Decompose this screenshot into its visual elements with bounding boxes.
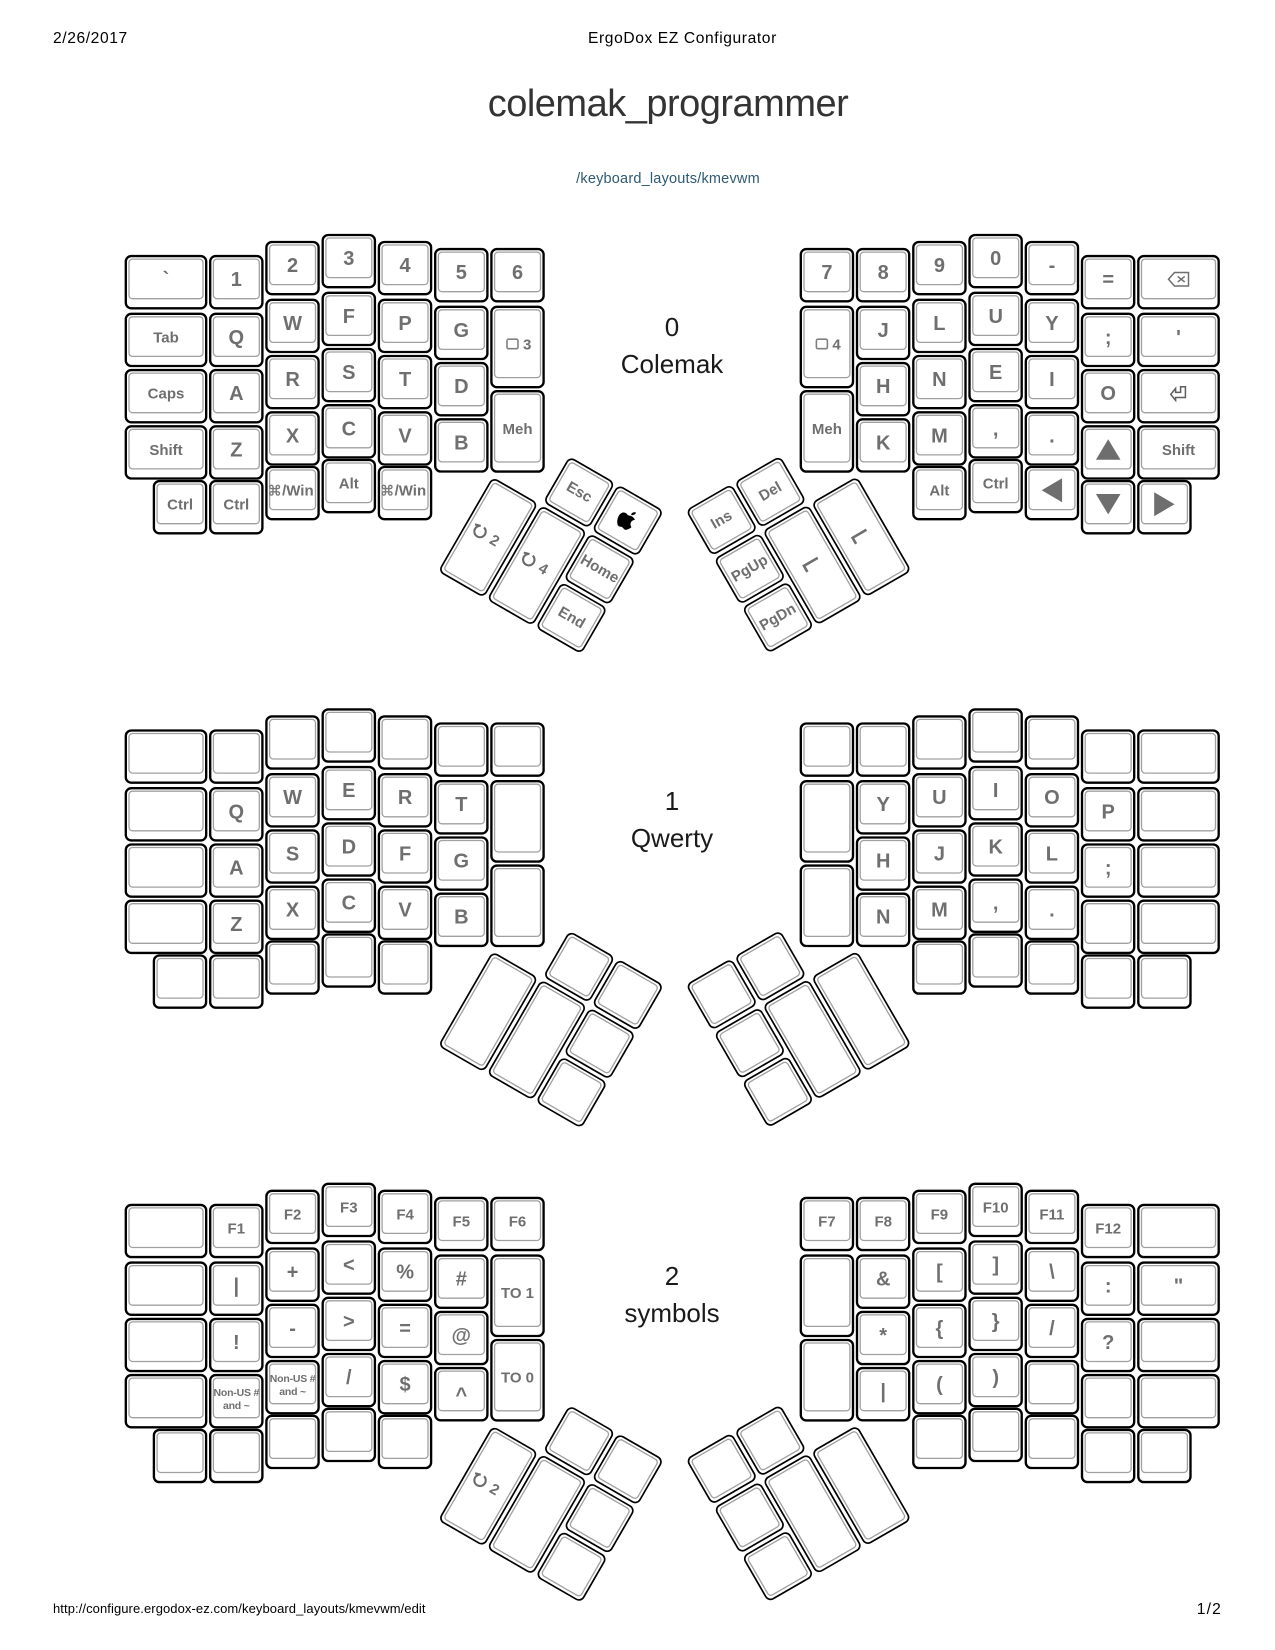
svg-text:C: C	[342, 418, 356, 440]
svg-text:@: @	[452, 1325, 472, 1347]
svg-text:A: A	[229, 383, 243, 405]
svg-text:V: V	[398, 900, 412, 922]
svg-text:!: !	[233, 1332, 240, 1354]
svg-text:Ctrl: Ctrl	[223, 497, 249, 514]
svg-text:L: L	[1046, 844, 1058, 866]
svg-text:T: T	[455, 794, 467, 816]
svg-text:J: J	[934, 844, 945, 866]
svg-text:=: =	[399, 1318, 411, 1340]
svg-text:J: J	[878, 320, 889, 342]
svg-text:C: C	[342, 893, 356, 915]
svg-text:Non-US #: Non-US #	[270, 1373, 316, 1385]
svg-text:P: P	[398, 313, 411, 335]
svg-text:^: ^	[455, 1385, 467, 1407]
svg-text:;: ;	[1105, 858, 1112, 880]
svg-text:": "	[1174, 1276, 1183, 1298]
svg-text:A: A	[229, 858, 243, 880]
svg-text:F11: F11	[1039, 1206, 1064, 1223]
svg-text:N: N	[876, 907, 890, 929]
svg-text:4: 4	[832, 336, 841, 353]
svg-text:TO 1: TO 1	[501, 1285, 534, 1302]
svg-text:6: 6	[512, 262, 523, 284]
svg-text:U: U	[988, 306, 1002, 328]
svg-text:#: #	[456, 1269, 467, 1291]
svg-text:V: V	[398, 425, 412, 447]
svg-text:Alt: Alt	[339, 476, 359, 493]
svg-text:F5: F5	[453, 1213, 471, 1230]
svg-text:Non-US #: Non-US #	[213, 1387, 259, 1399]
svg-text:K: K	[988, 836, 1003, 858]
svg-text:H: H	[876, 376, 890, 398]
svg-text:3: 3	[343, 248, 354, 270]
svg-text:Shift: Shift	[149, 442, 182, 459]
svg-text:2: 2	[287, 255, 298, 277]
svg-text:): )	[992, 1367, 999, 1389]
svg-text:W: W	[283, 313, 302, 335]
svg-text:Q: Q	[229, 801, 245, 823]
svg-text:F1: F1	[228, 1220, 246, 1237]
svg-text:F12: F12	[1095, 1220, 1121, 1237]
svg-text:Z: Z	[230, 439, 242, 461]
svg-text:F: F	[343, 306, 355, 328]
svg-text:+: +	[287, 1262, 299, 1284]
svg-text:,: ,	[993, 418, 999, 440]
svg-text:D: D	[454, 376, 468, 398]
svg-text:O: O	[1044, 787, 1060, 809]
svg-text:*: *	[879, 1325, 887, 1347]
svg-text:1: 1	[231, 269, 242, 291]
svg-text:W: W	[283, 787, 302, 809]
svg-text:5: 5	[456, 262, 467, 284]
svg-text:%: %	[396, 1262, 414, 1284]
svg-text:F3: F3	[340, 1199, 358, 1216]
svg-text:F9: F9	[931, 1206, 949, 1223]
svg-text:-: -	[1049, 255, 1056, 277]
svg-text:G: G	[454, 851, 470, 873]
svg-text:]: ]	[992, 1255, 999, 1277]
svg-text:F8: F8	[874, 1213, 892, 1230]
svg-text:S: S	[286, 844, 299, 866]
svg-text:N: N	[932, 369, 946, 391]
svg-text:R: R	[398, 787, 413, 809]
svg-text:K: K	[876, 432, 891, 454]
svg-text:|: |	[233, 1276, 239, 1298]
svg-text:}: }	[992, 1311, 1000, 1333]
svg-text:Caps: Caps	[148, 386, 185, 403]
svg-text:/: /	[1049, 1318, 1055, 1340]
svg-text:TO 0: TO 0	[501, 1370, 534, 1387]
svg-text:G: G	[454, 320, 470, 342]
svg-text:`: `	[163, 269, 170, 291]
svg-text:9: 9	[934, 255, 945, 277]
svg-text:B: B	[454, 432, 468, 454]
svg-text:Z: Z	[230, 914, 242, 936]
svg-text:4: 4	[400, 255, 412, 277]
svg-text:,: ,	[993, 893, 999, 915]
svg-text:P: P	[1102, 801, 1115, 823]
svg-text:Shift: Shift	[1162, 442, 1195, 459]
svg-text:X: X	[286, 900, 300, 922]
svg-text:Meh: Meh	[812, 421, 842, 438]
svg-text:/: /	[346, 1367, 352, 1389]
svg-text:(: (	[936, 1374, 943, 1396]
svg-text:O: O	[1100, 383, 1116, 405]
svg-text:;: ;	[1105, 327, 1112, 349]
svg-text:|: |	[880, 1381, 886, 1403]
svg-text:.: .	[1049, 425, 1055, 447]
svg-text:7: 7	[821, 262, 832, 284]
svg-text:Tab: Tab	[153, 329, 179, 346]
svg-text:I: I	[1049, 369, 1055, 391]
svg-text:X: X	[286, 425, 300, 447]
svg-text:-: -	[289, 1318, 296, 1340]
svg-text:{: {	[936, 1318, 944, 1340]
svg-text:$: $	[400, 1374, 411, 1396]
svg-text:F6: F6	[509, 1213, 527, 1230]
svg-text:I: I	[993, 780, 999, 802]
svg-text:F10: F10	[983, 1199, 1009, 1216]
svg-text:/Win: /Win	[395, 483, 427, 500]
svg-text:F7: F7	[818, 1213, 836, 1230]
svg-text:<: <	[343, 1255, 355, 1277]
svg-text::: :	[1105, 1276, 1112, 1298]
svg-text:/Win: /Win	[282, 483, 314, 500]
svg-text:E: E	[989, 362, 1002, 384]
svg-text:D: D	[342, 836, 356, 858]
svg-text:Q: Q	[229, 327, 245, 349]
svg-text:=: =	[1102, 269, 1114, 291]
svg-text:Ctrl: Ctrl	[167, 497, 193, 514]
svg-text:&: &	[876, 1269, 890, 1291]
svg-text:U: U	[932, 787, 946, 809]
svg-text:H: H	[876, 851, 890, 873]
svg-text:S: S	[342, 362, 355, 384]
svg-text:R: R	[285, 369, 300, 391]
svg-text:.: .	[1049, 900, 1055, 922]
svg-text:E: E	[342, 780, 355, 802]
svg-text:M: M	[931, 900, 948, 922]
svg-text:B: B	[454, 907, 468, 929]
svg-text:Y: Y	[877, 794, 891, 816]
svg-text:and ~: and ~	[279, 1386, 306, 1398]
svg-text:': '	[1176, 327, 1181, 349]
svg-text:M: M	[931, 425, 948, 447]
svg-text:Y: Y	[1045, 313, 1059, 335]
svg-text:and ~: and ~	[223, 1400, 250, 1412]
svg-text:F4: F4	[396, 1206, 414, 1223]
svg-text:>: >	[343, 1311, 355, 1333]
svg-text:0: 0	[990, 248, 1001, 270]
svg-text:[: [	[936, 1262, 943, 1284]
svg-text:8: 8	[878, 262, 889, 284]
svg-text:F2: F2	[284, 1206, 302, 1223]
svg-text:T: T	[399, 369, 411, 391]
svg-text:3: 3	[523, 336, 531, 353]
svg-text:Alt: Alt	[929, 483, 949, 500]
svg-text:?: ?	[1102, 1332, 1114, 1354]
svg-text:\: \	[1049, 1262, 1055, 1284]
svg-text:F: F	[399, 844, 411, 866]
svg-text:L: L	[933, 313, 945, 335]
svg-text:Meh: Meh	[503, 421, 533, 438]
svg-text:Ctrl: Ctrl	[983, 476, 1009, 493]
